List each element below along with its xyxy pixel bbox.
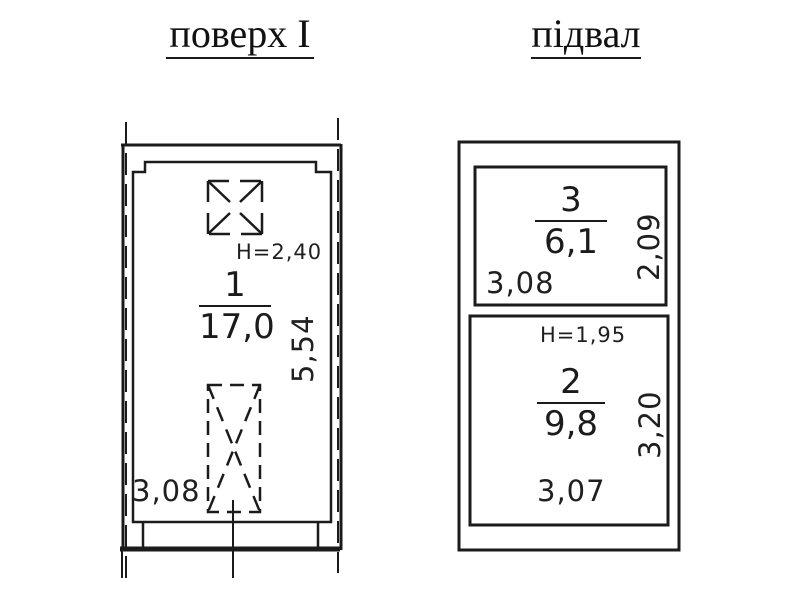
basement-ceiling-height-label: H=1,95 xyxy=(540,323,626,347)
basement-room3-area: 6,1 xyxy=(535,224,607,260)
basement-room2-dim-depth: 3,20 xyxy=(633,390,667,459)
floor-ceiling-height-label: H=2,40 xyxy=(236,240,322,264)
basement-room2-label: 2 9,8 xyxy=(537,364,605,442)
floor-plan-title: поверх I xyxy=(166,14,314,59)
basement-room3-dim-width: 3,08 xyxy=(486,266,555,300)
floor-dim-width: 3,08 xyxy=(132,474,201,508)
vent-shaft-icon xyxy=(208,181,262,234)
basement-room3-number: 3 xyxy=(535,182,607,222)
plan-linework xyxy=(0,0,800,615)
basement-room3-label: 3 6,1 xyxy=(535,182,607,260)
floor-dim-depth: 5,54 xyxy=(286,314,320,383)
basement-room2-dim-width: 3,07 xyxy=(537,474,606,508)
floor-room-area: 17,0 xyxy=(199,309,271,345)
staircase-icon xyxy=(208,385,260,512)
floor-room-number: 1 xyxy=(199,267,271,307)
basement-room3-dim-depth: 2,09 xyxy=(632,212,666,281)
floor-room-label: 1 17,0 xyxy=(199,267,271,345)
basement-room2-number: 2 xyxy=(537,364,605,404)
basement-plan-title: підвал xyxy=(531,14,641,59)
floor-plan-document: поверх I підвал H=2,40 1 17,0 5,54 3,08 … xyxy=(0,0,800,615)
basement-room2-area: 9,8 xyxy=(537,406,605,442)
